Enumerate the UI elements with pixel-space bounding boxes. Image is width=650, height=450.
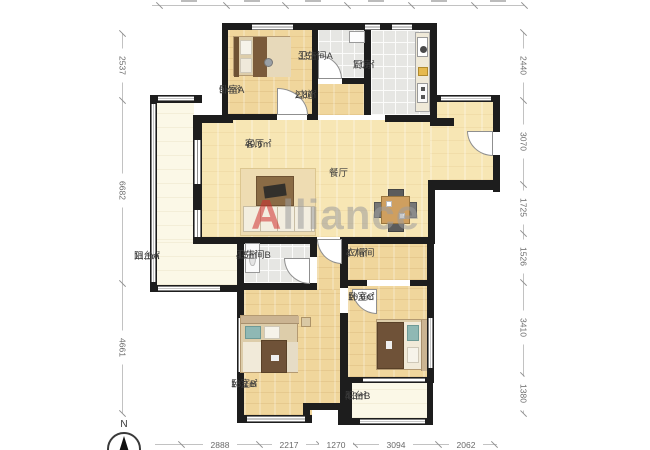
wall-segment [310,237,317,257]
dim-label: 6682 [118,174,127,208]
window [441,96,491,101]
clipped-dim-text [181,0,197,2]
clipped-dim-text [305,0,321,2]
wall-segment [364,30,371,115]
pillow [245,326,261,339]
counter-item [418,67,428,76]
blanket-fold [271,355,279,361]
clipped-dim-text [431,0,447,2]
wall-segment [338,403,345,425]
dim-label: 2440 [519,49,528,83]
sink-icon [417,37,428,57]
window [158,96,194,101]
sheet [243,342,263,372]
watermark: Alliance [251,194,420,236]
nightstand-icon [301,317,311,327]
clipped-dim-text [244,0,260,2]
window [247,416,305,422]
floor-balcony-a-upper [156,102,194,240]
sink-bowl [420,46,427,53]
toilet-icon [349,31,365,43]
floor-hallway [318,84,364,115]
wall-segment [342,237,435,244]
window [194,140,201,184]
bed-icon [376,319,427,370]
compass-needle [119,436,129,450]
window [252,24,293,30]
dim-label: 2537 [118,49,127,83]
pillow [407,325,419,341]
dim-label: 1526 [519,240,528,274]
clipped-dim-text [368,0,384,2]
burner [421,87,425,91]
kitchen-counter [415,32,430,112]
dim-label: 1725 [519,191,528,225]
wall-segment [428,186,435,244]
dim-label: 3410 [519,311,528,345]
window [194,210,201,237]
pillow [240,40,252,55]
wall-segment [428,180,500,190]
wall-segment [493,155,500,192]
window [392,24,412,30]
wall-segment [430,23,437,126]
wall-segment [222,114,277,120]
floor-balcony-a-lower [156,240,237,285]
wall-segment [222,23,228,121]
sheet [287,342,298,372]
dimension-line-top [152,5,524,6]
window [363,378,425,382]
wall-segment [237,283,317,290]
dim-label: 2062 [449,441,483,450]
bed-headboard [421,320,427,371]
pillow [240,58,252,73]
bed-headboard [234,37,239,77]
dim-label: 1270 [319,441,353,450]
wall-segment [427,383,433,425]
window [360,419,425,424]
wall-segment [342,78,366,84]
wall-segment [493,95,500,132]
clipped-dim-text [490,0,506,2]
dim-label: 3094 [379,441,413,450]
wall-segment [310,283,317,290]
bed-icon [240,315,298,373]
wall-segment [345,280,367,286]
dim-label: 1380 [519,377,528,411]
wall-segment [345,383,352,425]
pillow [407,347,419,363]
dim-label: 2888 [203,441,237,450]
burner [421,95,425,99]
blanket [261,340,287,373]
window [158,286,220,291]
stove-icon [417,83,428,103]
dim-label: 2217 [272,441,306,450]
bed-icon [233,36,290,76]
sheet [267,37,291,77]
blanket-fold [386,341,392,349]
blanket [377,322,404,369]
dim-label: 3070 [519,125,528,159]
dim-label: 4661 [118,331,127,365]
compass-n-label: N [104,419,144,430]
window [428,318,433,368]
blanket [253,37,267,77]
floor-plan-canvas: 卧室A9.4㎡ 卫生间A3.5㎡ 过道2.8㎡ 厨房7.0㎡ 客厅40.6㎡ 餐… [0,0,650,450]
stool-icon [264,58,273,67]
compass-icon [107,432,141,450]
bed-headboard [241,316,299,324]
window [365,24,380,30]
pillow [264,326,280,339]
